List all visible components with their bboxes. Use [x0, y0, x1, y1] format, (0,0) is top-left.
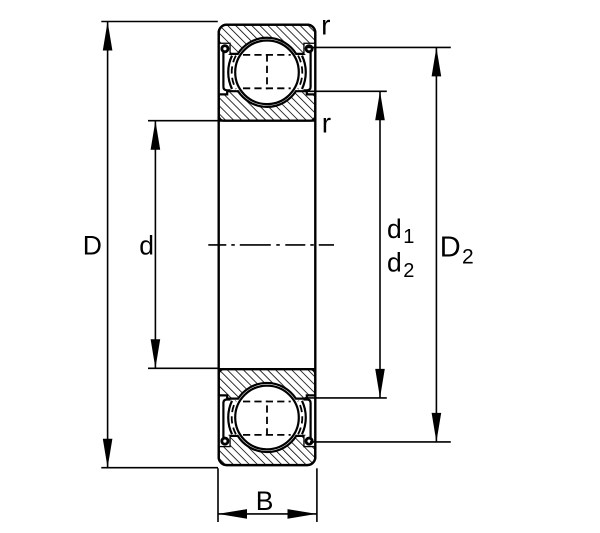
- svg-text:D: D: [83, 230, 102, 260]
- svg-text:B: B: [256, 486, 274, 516]
- svg-text:d: d: [139, 230, 154, 260]
- svg-text:2: 2: [462, 246, 474, 269]
- svg-text:r: r: [321, 10, 330, 41]
- svg-text:d: d: [387, 248, 402, 278]
- svg-text:D: D: [440, 231, 461, 263]
- svg-text:1: 1: [403, 226, 414, 248]
- svg-text:2: 2: [403, 260, 414, 282]
- svg-text:d: d: [387, 214, 402, 244]
- svg-text:r: r: [322, 107, 331, 138]
